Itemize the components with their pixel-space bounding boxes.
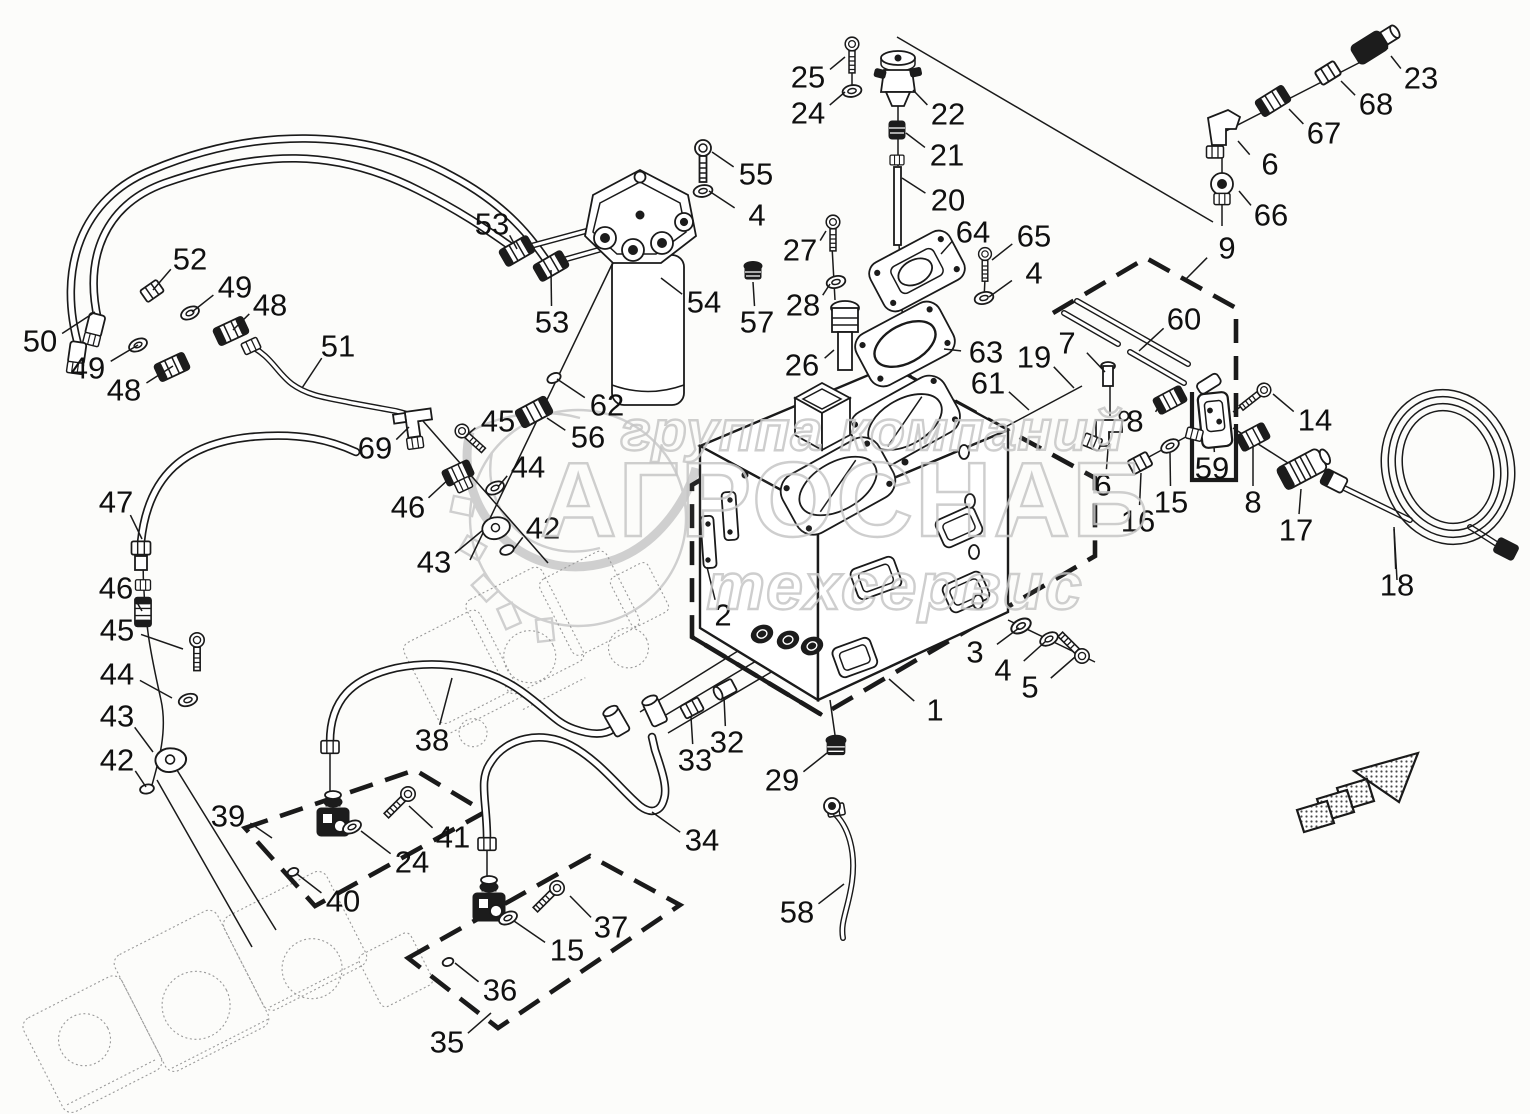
leader-line-23 xyxy=(1391,56,1401,69)
leader-line-33 xyxy=(691,717,693,744)
leader-line-41 xyxy=(409,806,433,828)
leader-line-18 xyxy=(1394,529,1396,569)
part-label-55: 55 xyxy=(739,157,773,192)
leader-line-45 xyxy=(141,634,183,649)
part-label-41: 41 xyxy=(436,820,470,855)
part-label-50: 50 xyxy=(23,324,57,359)
leader-line-65 xyxy=(992,244,1012,260)
part-label-44: 44 xyxy=(511,450,545,485)
leader-line-6 xyxy=(1238,141,1250,155)
part-label-49: 49 xyxy=(71,351,105,386)
breather-26 xyxy=(831,301,859,370)
leader-line-32 xyxy=(724,697,725,726)
part-label-23: 23 xyxy=(1404,61,1438,96)
leader-line-37 xyxy=(570,896,591,917)
part-label-15: 15 xyxy=(1154,485,1188,520)
part-label-68: 68 xyxy=(1359,87,1393,122)
leader-line-26 xyxy=(825,350,834,358)
part-label-20: 20 xyxy=(931,183,965,218)
leader-line-40 xyxy=(297,874,321,893)
part-label-15: 15 xyxy=(550,933,584,968)
hydraulic-tank xyxy=(700,366,1008,700)
part-label-69: 69 xyxy=(358,431,392,466)
leader-line-27 xyxy=(820,231,826,241)
part-label-33: 33 xyxy=(678,743,712,778)
leader-line-56 xyxy=(547,418,565,430)
part-label-51: 51 xyxy=(321,329,355,364)
leader-line-57 xyxy=(753,282,755,306)
part-label-2: 2 xyxy=(714,598,731,633)
part-label-59: 59 xyxy=(1195,451,1229,486)
part-label-8: 8 xyxy=(1126,404,1143,439)
leader-line-42 xyxy=(135,771,146,787)
part-label-53: 53 xyxy=(475,207,509,242)
part-label-57: 57 xyxy=(740,305,774,340)
part-label-46: 46 xyxy=(99,571,133,606)
leader-line-29 xyxy=(803,753,827,772)
part-label-46: 46 xyxy=(391,490,425,525)
part-label-54: 54 xyxy=(687,285,721,320)
leader-line-62 xyxy=(557,379,585,398)
part-label-32: 32 xyxy=(710,725,744,760)
leader-line-66 xyxy=(1239,191,1251,205)
part-label-7: 7 xyxy=(1058,326,1075,361)
leader-line-51 xyxy=(302,358,322,388)
part-label-56: 56 xyxy=(571,420,605,455)
part-label-36: 36 xyxy=(483,973,517,1008)
filler-cap-22 xyxy=(874,51,922,106)
elbow-69 xyxy=(393,408,436,451)
leader-line-21 xyxy=(906,133,925,147)
part-label-63: 63 xyxy=(969,335,1003,370)
part-label-34: 34 xyxy=(685,823,719,858)
part-label-37: 37 xyxy=(594,910,628,945)
part-label-6: 6 xyxy=(1261,147,1278,182)
cover-64 xyxy=(865,226,970,316)
part-label-16: 16 xyxy=(1121,504,1155,539)
part-label-45: 45 xyxy=(100,613,134,648)
leader-line-39 xyxy=(250,823,272,838)
leader-line-14 xyxy=(1273,394,1294,412)
leader-line-15 xyxy=(514,921,545,942)
part-label-3: 3 xyxy=(966,635,983,670)
part-label-24: 24 xyxy=(791,96,825,131)
leader-line-35 xyxy=(468,1013,491,1033)
part-label-40: 40 xyxy=(326,884,360,919)
part-label-52: 52 xyxy=(173,242,207,277)
elbow-6-right xyxy=(1081,412,1128,452)
part-label-27: 27 xyxy=(783,233,817,268)
leader-line-17 xyxy=(1299,489,1301,514)
part-label-4: 4 xyxy=(1025,256,1042,291)
part-label-62: 62 xyxy=(590,388,624,423)
leader-line-16 xyxy=(1140,473,1141,505)
part-label-65: 65 xyxy=(1017,219,1051,254)
part-label-61: 61 xyxy=(971,366,1005,401)
leader-line-4 xyxy=(1024,641,1046,661)
part-label-53: 53 xyxy=(535,305,569,340)
part-label-35: 35 xyxy=(430,1025,464,1060)
part-label-17: 17 xyxy=(1279,513,1313,548)
part-label-39: 39 xyxy=(211,799,245,834)
leader-line-1 xyxy=(889,679,914,701)
part-label-21: 21 xyxy=(930,138,964,173)
part-label-5: 5 xyxy=(1021,670,1038,705)
leader-line-4 xyxy=(709,191,735,208)
leader-line-22 xyxy=(913,90,927,105)
leader-line-7 xyxy=(1087,353,1105,372)
leader-line-9 xyxy=(1185,258,1207,280)
leader-line-5 xyxy=(1051,657,1075,678)
part-label-66: 66 xyxy=(1254,198,1288,233)
part-label-48: 48 xyxy=(253,288,287,323)
part-label-47: 47 xyxy=(99,485,133,520)
leader-line-20 xyxy=(902,178,925,193)
leader-line-43 xyxy=(135,727,153,752)
part-label-9: 9 xyxy=(1218,231,1235,266)
part-label-49: 49 xyxy=(218,270,252,305)
part-label-42: 42 xyxy=(526,511,560,546)
leader-line-49 xyxy=(111,345,138,361)
dipstick-rod-20 xyxy=(894,167,901,245)
leader-line-38 xyxy=(440,678,452,725)
part-label-18: 18 xyxy=(1380,568,1414,603)
leader-line-67 xyxy=(1289,109,1303,124)
part-label-22: 22 xyxy=(931,97,965,132)
leader-line-53 xyxy=(551,270,552,306)
part-label-28: 28 xyxy=(786,288,820,323)
banjo-66 xyxy=(1211,173,1233,205)
parts-diagram-canvas: 5052494849485153535545457625627282625242… xyxy=(0,0,1530,1114)
leader-line-3 xyxy=(997,628,1019,644)
leader-line-4 xyxy=(989,281,1012,297)
diagram-page: 5052494849485153535545457625627282625242… xyxy=(0,0,1530,1114)
leader-line-58 xyxy=(818,884,844,904)
part-label-19: 19 xyxy=(1017,340,1051,375)
direction-arrow-icon xyxy=(1297,753,1418,832)
part-label-8: 8 xyxy=(1244,485,1261,520)
leader-line-24 xyxy=(830,92,845,105)
leader-line-49 xyxy=(192,295,213,312)
part-label-42: 42 xyxy=(100,743,134,778)
part-label-45: 45 xyxy=(481,404,515,439)
part-label-67: 67 xyxy=(1307,116,1341,151)
part-label-4: 4 xyxy=(748,198,765,233)
part-label-44: 44 xyxy=(100,657,134,692)
leader-line-55 xyxy=(712,152,734,167)
leader-line-19 xyxy=(1054,367,1074,388)
elbow-6-top xyxy=(1207,110,1241,158)
part-label-4: 4 xyxy=(994,653,1011,688)
leader-line-6 xyxy=(1106,449,1108,469)
leader-line-61 xyxy=(1009,392,1029,410)
cable-coil xyxy=(1365,375,1530,558)
part-label-60: 60 xyxy=(1167,302,1201,337)
leader-line-34 xyxy=(652,812,680,832)
part-label-38: 38 xyxy=(415,723,449,758)
part-label-1: 1 xyxy=(926,693,943,728)
pressure-switch-23 xyxy=(1349,21,1403,66)
leader-line-36 xyxy=(455,963,479,982)
leader-line-44 xyxy=(140,680,172,698)
part-label-29: 29 xyxy=(765,763,799,798)
part-label-14: 14 xyxy=(1298,403,1332,438)
leader-line-24 xyxy=(361,831,391,854)
leader-line-68 xyxy=(1341,81,1355,95)
part-label-6: 6 xyxy=(1094,468,1111,503)
filler-neck xyxy=(795,383,850,450)
part-label-24: 24 xyxy=(395,845,429,880)
part-label-43: 43 xyxy=(417,545,451,580)
part-label-64: 64 xyxy=(956,215,990,250)
leader-line-25 xyxy=(830,57,845,69)
leader-line-46 xyxy=(429,477,451,498)
part-label-43: 43 xyxy=(100,699,134,734)
part-label-25: 25 xyxy=(791,60,825,95)
part-21 xyxy=(889,121,905,139)
part-label-58: 58 xyxy=(780,895,814,930)
part-label-48: 48 xyxy=(107,373,141,408)
part-label-26: 26 xyxy=(785,348,819,383)
fitting-7 xyxy=(1101,362,1115,386)
